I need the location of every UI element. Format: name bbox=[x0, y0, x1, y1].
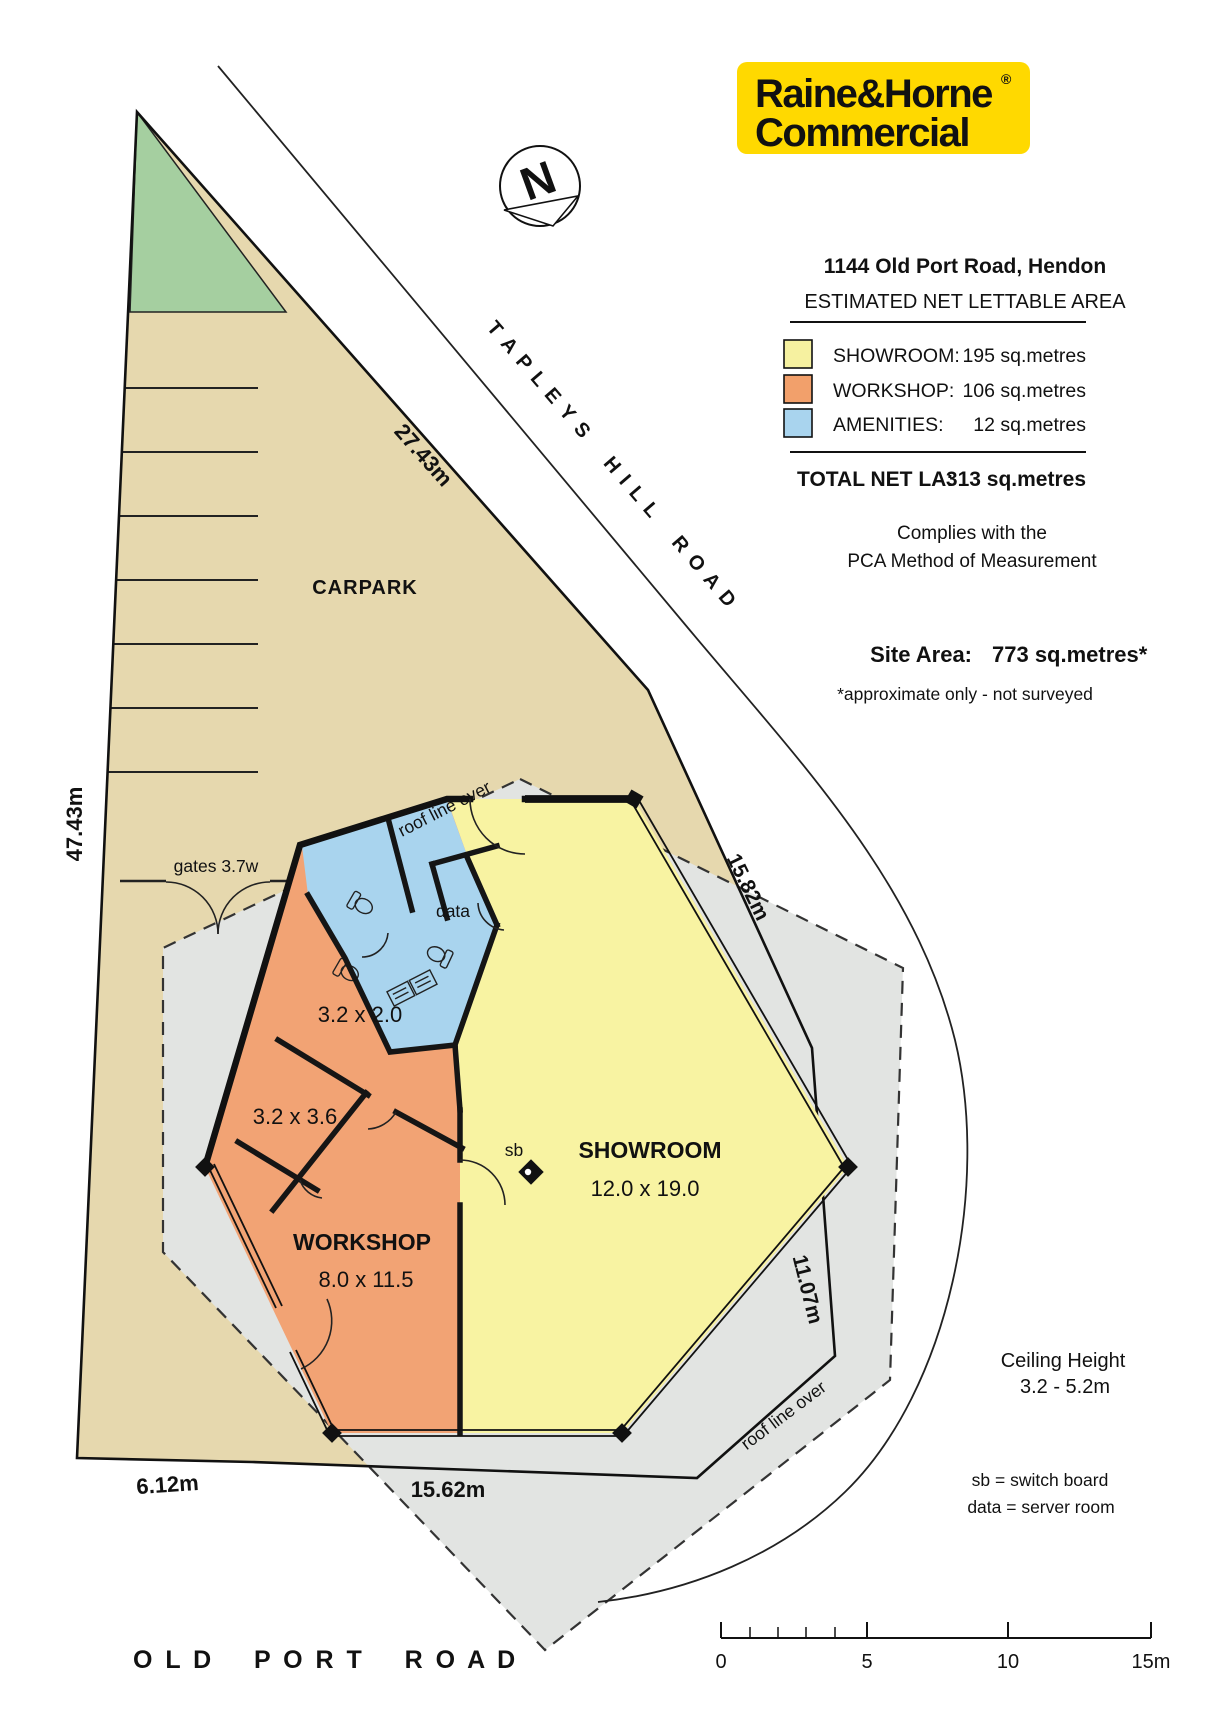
legend: SHOWROOM: 195 sq.metres WORKSHOP: 106 sq… bbox=[784, 340, 1086, 437]
showroom-size: 12.0 x 19.0 bbox=[591, 1176, 700, 1201]
brand-logo: Raine&Horne ® Commercial bbox=[737, 62, 1030, 155]
sb-note: sb = switch board bbox=[972, 1470, 1109, 1490]
scale-15: 15m bbox=[1132, 1651, 1171, 1673]
scale-bar: 0 5 10 15m bbox=[715, 1622, 1170, 1673]
dim-south-west: 6.12m bbox=[135, 1470, 199, 1499]
total-value: 313 sq.metres bbox=[946, 468, 1086, 491]
logo-line2: Commercial bbox=[755, 111, 969, 155]
dim-south-main: 15.62m bbox=[411, 1477, 486, 1502]
scale-0: 0 bbox=[715, 1651, 726, 1673]
landscaped-area bbox=[130, 112, 286, 312]
registered-icon: ® bbox=[1001, 71, 1012, 87]
legend-swatch-amenities bbox=[784, 409, 812, 437]
scale-5: 5 bbox=[861, 1651, 872, 1673]
logo-line1: Raine&Horne bbox=[755, 72, 992, 116]
legend-label-showroom: SHOWROOM: bbox=[833, 345, 960, 367]
data-note: data = server room bbox=[967, 1497, 1114, 1517]
north-arrow: N bbox=[500, 146, 580, 226]
property-address: 1144 Old Port Road, Hendon bbox=[824, 255, 1106, 278]
north-letter: N bbox=[513, 150, 562, 210]
compliance-line2: PCA Method of Measurement bbox=[847, 551, 1097, 572]
total-label: TOTAL NET LA: bbox=[797, 468, 953, 491]
scale-10: 10 bbox=[997, 1651, 1019, 1673]
legend-label-amenities: AMENITIES: bbox=[833, 414, 944, 436]
gates-label: gates 3.7w bbox=[174, 856, 259, 876]
ceiling-height-line2: 3.2 - 5.2m bbox=[1020, 1376, 1110, 1398]
legend-swatch-workshop bbox=[784, 375, 812, 403]
legend-label-workshop: WORKSHOP: bbox=[833, 380, 954, 402]
room1-size: 3.2 x 2.0 bbox=[318, 1002, 402, 1027]
ceiling-height-line1: Ceiling Height bbox=[1001, 1350, 1126, 1372]
site-area-label: Site Area: bbox=[870, 642, 972, 667]
legend-value-workshop: 106 sq.metres bbox=[962, 380, 1086, 402]
sb-label: sb bbox=[505, 1140, 523, 1160]
legend-swatch-showroom bbox=[784, 340, 812, 368]
workshop-size: 8.0 x 11.5 bbox=[319, 1267, 414, 1292]
road-label-old-port: O L D P O R T R O A D bbox=[133, 1646, 518, 1674]
workshop-label: WORKSHOP bbox=[293, 1229, 431, 1255]
legend-value-showroom: 195 sq.metres bbox=[962, 345, 1086, 367]
legend-value-amenities: 12 sq.metres bbox=[973, 414, 1086, 436]
info-panel: 1144 Old Port Road, Hendon ESTIMATED NET… bbox=[784, 255, 1148, 704]
floorplan-page: CARPARK gates 3.7w SHOWROOM 12.0 x 19.0 … bbox=[0, 0, 1224, 1731]
site-plan-canvas: CARPARK gates 3.7w SHOWROOM 12.0 x 19.0 … bbox=[0, 0, 1224, 1731]
panel-subtitle: ESTIMATED NET LETTABLE AREA bbox=[804, 291, 1126, 313]
dim-west: 47.43m bbox=[62, 787, 87, 862]
room2-size: 3.2 x 3.6 bbox=[253, 1104, 337, 1129]
compliance-line1: Complies with the bbox=[897, 523, 1047, 544]
carpark-label: CARPARK bbox=[312, 577, 418, 599]
notes: Ceiling Height 3.2 - 5.2m sb = switch bo… bbox=[967, 1350, 1125, 1517]
site-area-note: *approximate only - not surveyed bbox=[837, 684, 1093, 704]
showroom-label: SHOWROOM bbox=[578, 1137, 721, 1163]
site-area-value: 773 sq.metres* bbox=[992, 642, 1148, 667]
data-room-label: data bbox=[436, 901, 470, 921]
